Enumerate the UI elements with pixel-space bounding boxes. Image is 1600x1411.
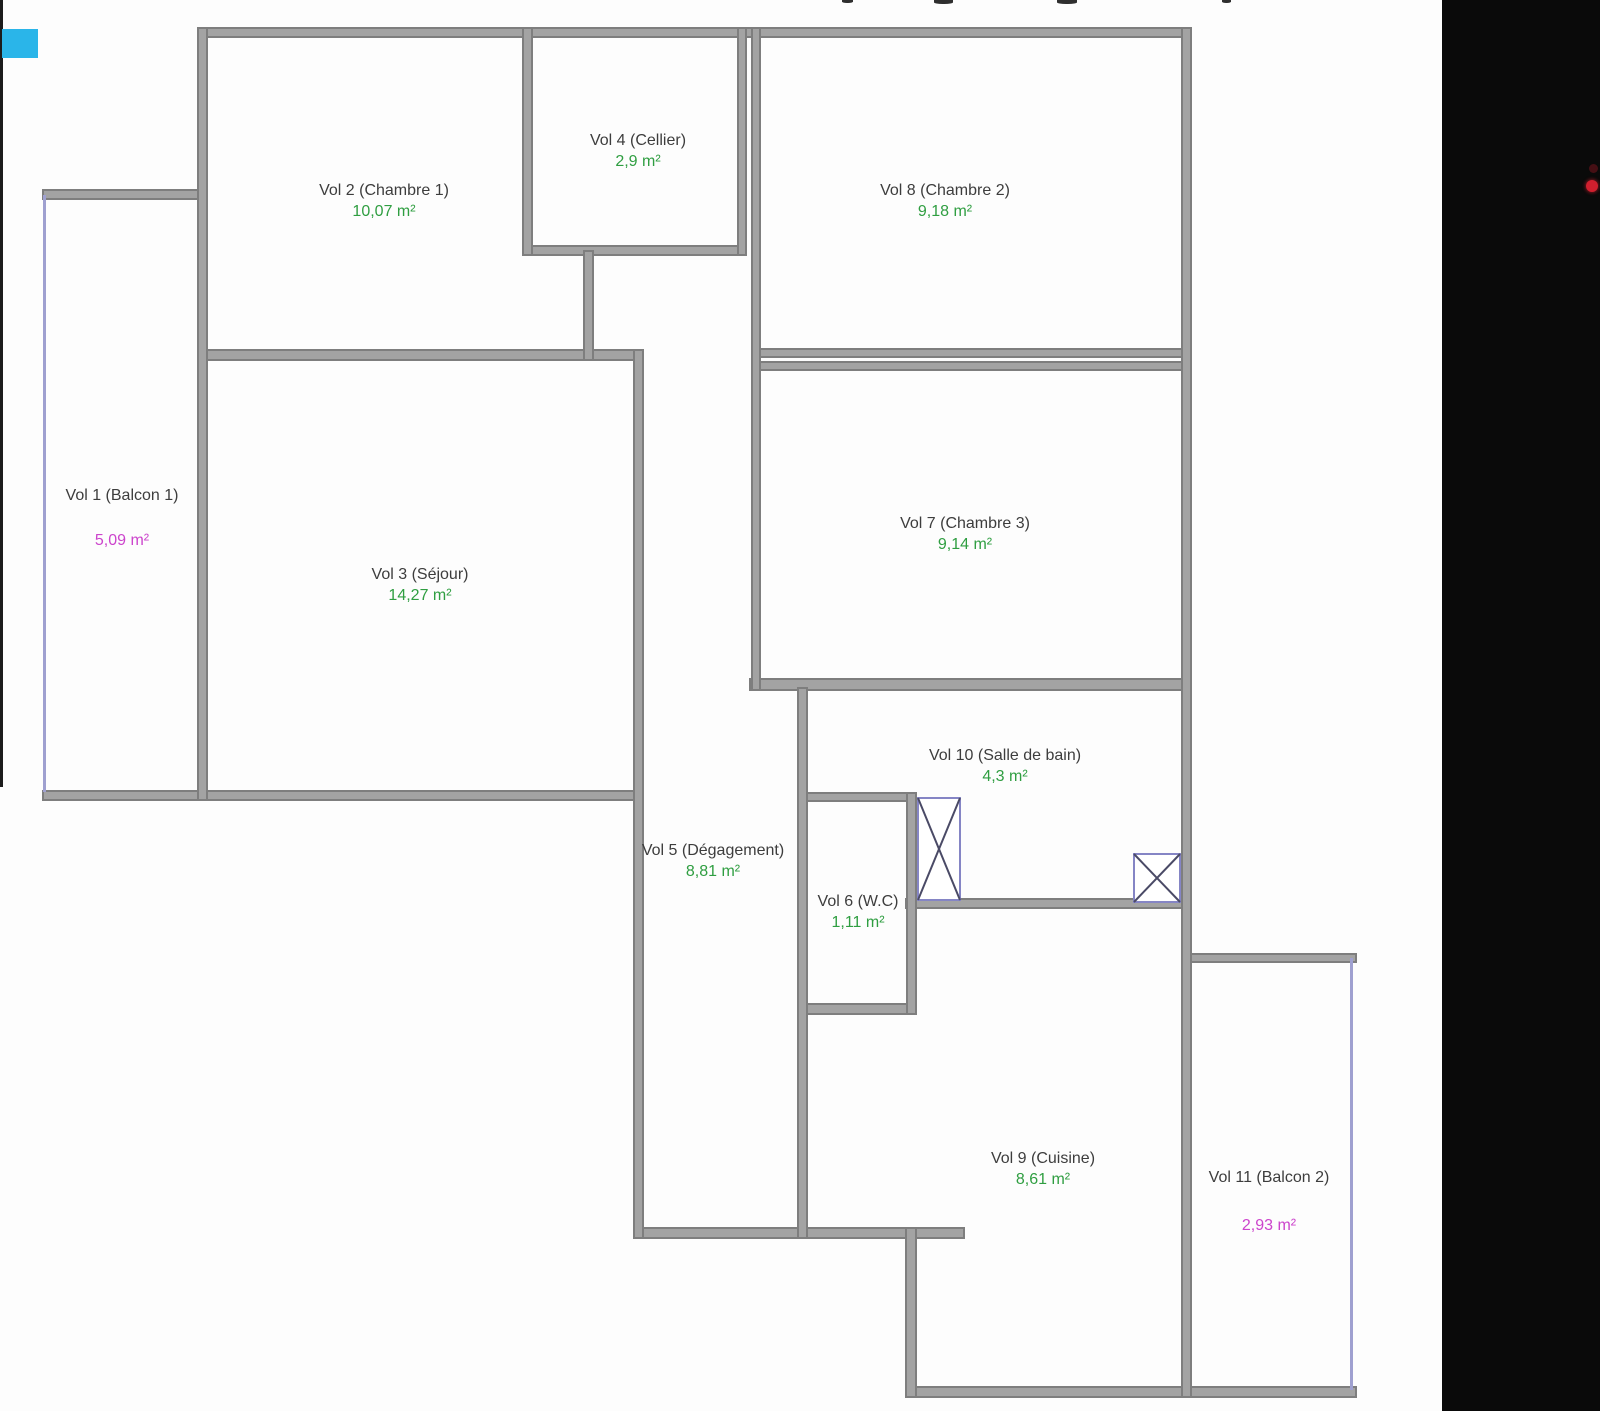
wall-corridor-left	[633, 349, 644, 1239]
fixture-crossed-box-bathroom-right	[1133, 853, 1181, 903]
fixture-crossed-box-bathroom-left	[917, 797, 961, 901]
room-name: Vol 10 (Salle de bain)	[929, 745, 1081, 766]
room-name: Vol 4 (Cellier)	[590, 130, 686, 151]
room-area: 9,14 m²	[938, 534, 992, 555]
room-label-vol-4: Vol 4 (Cellier) 2,9 m²	[590, 130, 686, 172]
wall-exterior-left	[197, 27, 208, 801]
cutoff-title-fragment	[1222, 0, 1231, 3]
room-name: Vol 3 (Séjour)	[372, 564, 469, 585]
room-name: Vol 8 (Chambre 2)	[880, 180, 1010, 201]
room-name: Vol 5 (Dégagement)	[642, 840, 784, 861]
room-area: 14,27 m²	[388, 585, 451, 606]
room-area: 8,81 m²	[686, 861, 740, 882]
right-black-panel	[1442, 0, 1600, 1411]
room-label-vol-2: Vol 2 (Chambre 1) 10,07 m²	[319, 180, 449, 222]
room-area: 2,93 m²	[1242, 1215, 1296, 1236]
cutoff-title-fragment	[842, 0, 853, 3]
wall-corridor-right-wc-left	[797, 687, 808, 1239]
room-name: Vol 1 (Balcon 1)	[66, 485, 179, 506]
room-area: 2,9 m²	[615, 151, 660, 172]
balcony1-edge-line	[43, 195, 46, 792]
red-indicator-dot	[1586, 180, 1598, 192]
wall-chambre1-right	[522, 27, 533, 256]
floor-plan: Vol 1 (Balcon 1) 5,09 m² Vol 2 (Chambre …	[0, 0, 1600, 1411]
wall-chambre1-notch-right	[583, 250, 594, 361]
wall-chambre1-sejour-divider	[197, 349, 644, 361]
wall-wc-right	[906, 792, 917, 1015]
room-label-vol-11: Vol 11 (Balcon 2) 2,93 m²	[1209, 1167, 1330, 1236]
room-name: Vol 2 (Chambre 1)	[319, 180, 449, 201]
wall-cellier-right	[737, 27, 747, 256]
red-indicator-dot-faint	[1589, 164, 1598, 173]
room-area: 8,61 m²	[1016, 1169, 1070, 1190]
screen-edge-line	[0, 0, 3, 787]
wall-chambre3-bottom-bathroom-top	[749, 678, 1192, 691]
room-name: Vol 9 (Cuisine)	[991, 1148, 1095, 1169]
wall-cellier-bottom	[522, 245, 747, 256]
room-label-vol-8: Vol 8 (Chambre 2) 9,18 m²	[880, 180, 1010, 222]
cutoff-title-fragment	[934, 0, 953, 4]
room-area: 9,18 m²	[918, 201, 972, 222]
wall-wc-bottom	[797, 1003, 917, 1015]
room-name: Vol 11 (Balcon 2)	[1209, 1167, 1330, 1188]
room-label-vol-10: Vol 10 (Salle de bain) 4,3 m²	[929, 745, 1081, 787]
room-name: Vol 7 (Chambre 3)	[900, 513, 1030, 534]
cyan-highlight-marker	[2, 29, 38, 58]
balcony2-edge-line	[1350, 958, 1353, 1390]
room-area: 4,3 m²	[982, 766, 1027, 787]
room-label-vol-1: Vol 1 (Balcon 1) 5,09 m²	[66, 485, 179, 551]
wall-sejour-balcony1-bottom	[42, 790, 644, 801]
wall-exterior-top	[197, 27, 1192, 38]
wall-kitchen-balcony2-bottom	[905, 1386, 1357, 1398]
room-label-vol-3: Vol 3 (Séjour) 14,27 m²	[372, 564, 469, 606]
room-label-vol-9: Vol 9 (Cuisine) 8,61 m²	[991, 1148, 1095, 1190]
room-label-vol-7: Vol 7 (Chambre 3) 9,14 m²	[900, 513, 1030, 555]
wall-wc-top	[797, 792, 917, 802]
room-label-vol-5: Vol 5 (Dégagement) 8,81 m²	[642, 840, 784, 882]
room-area: 10,07 m²	[352, 201, 415, 222]
wall-kitchen-left	[905, 1227, 917, 1398]
room-area: 5,09 m²	[95, 530, 149, 551]
wall-balcony2-top	[1187, 953, 1357, 963]
cutoff-title-fragment	[1057, 0, 1077, 4]
wall-chambre2-chambre3-left	[751, 27, 761, 691]
room-area: 1,11 m²	[831, 912, 884, 933]
wall-chambre2-bottom	[751, 348, 1192, 358]
wall-exterior-right	[1181, 27, 1192, 1398]
wall-chambre3-top	[751, 361, 1192, 371]
room-label-vol-6: Vol 6 (W.C) 1,11 m²	[818, 891, 899, 933]
room-name: Vol 6 (W.C)	[818, 891, 899, 912]
wall-balcony1-top	[42, 189, 199, 200]
